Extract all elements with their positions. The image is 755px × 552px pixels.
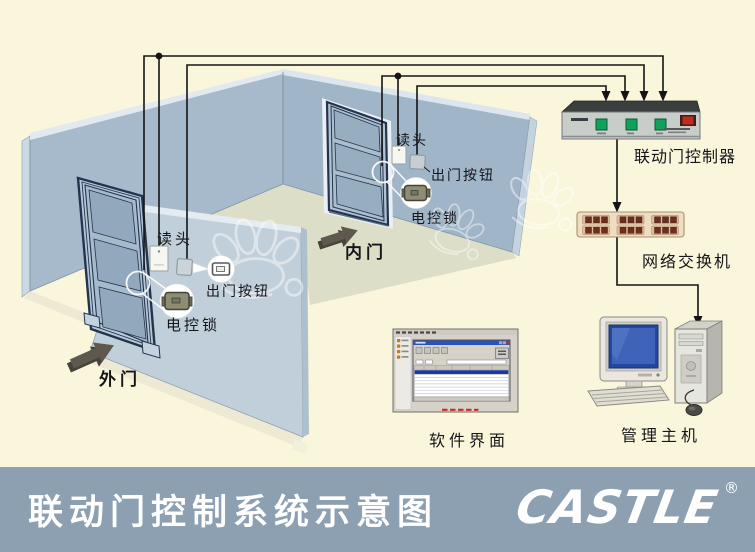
inner-door-label: 内门 [345, 238, 387, 263]
outer-door-sensor [176, 259, 192, 276]
registered-trademark-icon: ® [724, 479, 739, 497]
keyboard [588, 386, 669, 406]
outer-exit-button-label: 出门按钮 [206, 281, 270, 301]
child-titlebar [414, 341, 510, 346]
host-label: 管理主机 [621, 422, 701, 446]
inner-lock-label: 电控锁 [411, 208, 459, 228]
footer-title-bar: 联动门控制系统示意图 CASTLE ® [0, 467, 755, 552]
software-window [393, 329, 518, 412]
controller-label: 联动门控制器 [634, 143, 736, 167]
side-button [496, 348, 509, 359]
tower [675, 321, 722, 403]
status-bar [414, 397, 509, 401]
inner-exit-button-label: 出门按钮 [431, 165, 495, 185]
network-switch-device [577, 212, 684, 237]
menu-bar [396, 331, 436, 333]
close-icon [506, 341, 509, 344]
brand-logo: CASTLE ® [517, 477, 739, 537]
switch-label: 网络交换机 [642, 248, 732, 272]
outer-lock-label: 电控锁 [166, 314, 220, 335]
outer-door-label: 外门 [99, 365, 141, 390]
selected-row [415, 370, 509, 374]
table-header [414, 366, 509, 371]
monitor [600, 317, 667, 381]
inner-exit-button [410, 155, 426, 170]
software-label: 软件界面 [429, 427, 509, 451]
monitor-stand [626, 381, 642, 387]
inner-reader-label: 读头 [396, 130, 428, 150]
outer-reader-label: 读头 [157, 228, 193, 249]
diagram-scene [0, 0, 755, 467]
page-title: 联动门控制系统示意图 [28, 484, 438, 535]
interlock-door-system-diagram: 读头 出门按钮 电控锁 外门 读头 出门按钮 电控锁 内门 联动门控制器 网络交… [0, 0, 755, 552]
controller-logo [571, 118, 588, 121]
controller-device [562, 101, 700, 139]
power-switch [683, 117, 694, 125]
brand-wordmark: CASTLE [512, 477, 723, 537]
outer-card-reader [150, 246, 168, 271]
left-wall-edge [22, 136, 30, 297]
host-computer [588, 317, 722, 416]
